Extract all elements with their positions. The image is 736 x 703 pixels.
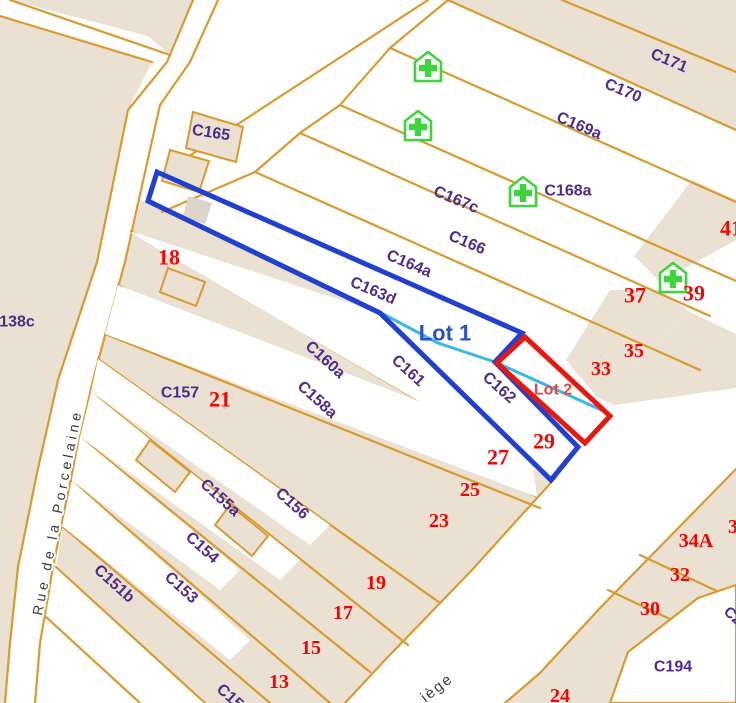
label-c194: C194 (654, 659, 692, 676)
label-138c: 138c (0, 314, 35, 331)
label-3: 3 (728, 516, 736, 538)
label-27: 27 (487, 445, 509, 470)
label-c157: C157 (161, 385, 199, 402)
label-iège: iège (417, 670, 456, 703)
label-32: 32 (670, 564, 690, 586)
label-34a: 34A (679, 530, 714, 552)
label-lot-1: Lot 1 (419, 321, 472, 346)
label-23: 23 (429, 510, 449, 532)
label-29: 29 (533, 429, 555, 454)
label-35: 35 (624, 340, 644, 362)
label-41: 41 (720, 216, 736, 241)
label-c167c: C167c (431, 183, 481, 217)
cadastral-map-canvas: C165138cC167cC166C164aC163dC169aC170C171… (0, 0, 736, 703)
label-c169a: C169a (554, 109, 604, 143)
label-37: 37 (624, 283, 646, 308)
label-15: 15 (301, 637, 321, 659)
label-33: 33 (591, 358, 611, 380)
label-c168a: C168a (544, 183, 591, 200)
label-17: 17 (333, 602, 353, 624)
cadastral-map-view[interactable]: C165138cC167cC166C164aC163dC169aC170C171… (0, 0, 736, 703)
label-13: 13 (269, 671, 289, 693)
label-c166: C166 (446, 228, 488, 259)
pharmacy-icon (405, 111, 431, 140)
label-24: 24 (550, 685, 570, 703)
label-25: 25 (460, 479, 480, 501)
label-18: 18 (158, 245, 180, 270)
label-30: 30 (640, 598, 660, 620)
label-39: 39 (683, 281, 705, 306)
pharmacy-icon (415, 52, 441, 81)
label-lot-2: Lot 2 (534, 382, 572, 399)
label-21: 21 (209, 387, 231, 412)
label-19: 19 (366, 572, 386, 594)
